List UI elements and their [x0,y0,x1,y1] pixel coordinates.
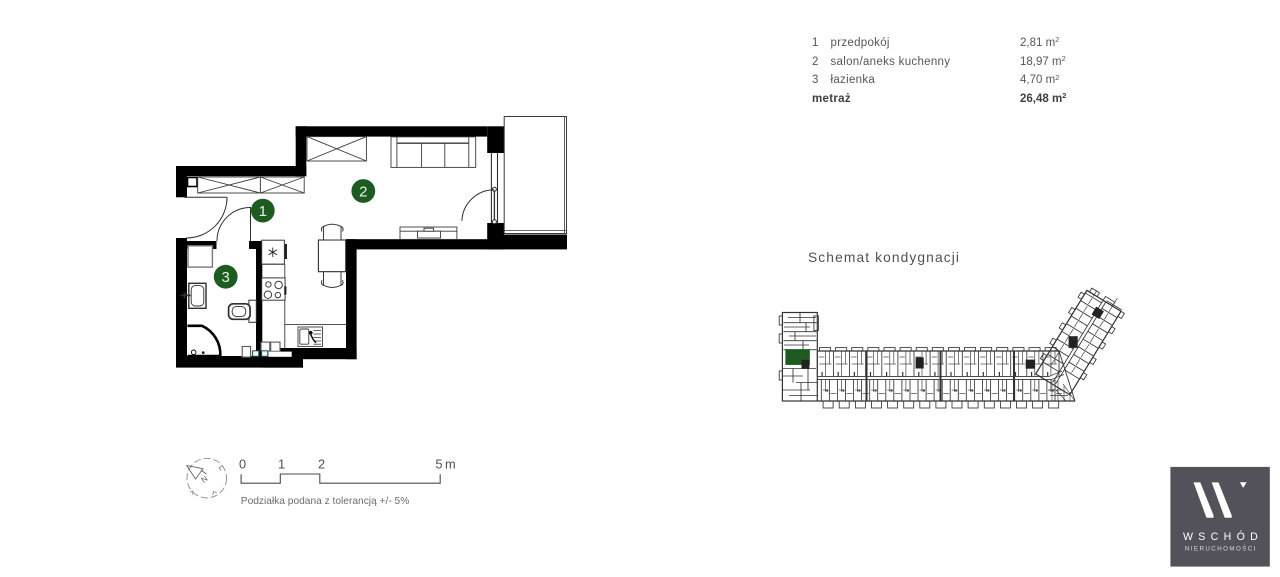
svg-text:1: 1 [278,456,285,471]
svg-text:WSCHÓD: WSCHÓD [1183,530,1263,543]
svg-text:2: 2 [359,183,367,200]
svg-text:m: m [445,456,456,471]
svg-text:5: 5 [435,456,442,471]
svg-text:1: 1 [259,203,267,220]
svg-text:2: 2 [318,456,325,471]
svg-text:N: N [199,474,209,485]
svg-text:3: 3 [222,269,230,286]
svg-text:0: 0 [239,456,246,471]
svg-text:NIERUCHOMOŚCI: NIERUCHOMOŚCI [1185,544,1257,552]
